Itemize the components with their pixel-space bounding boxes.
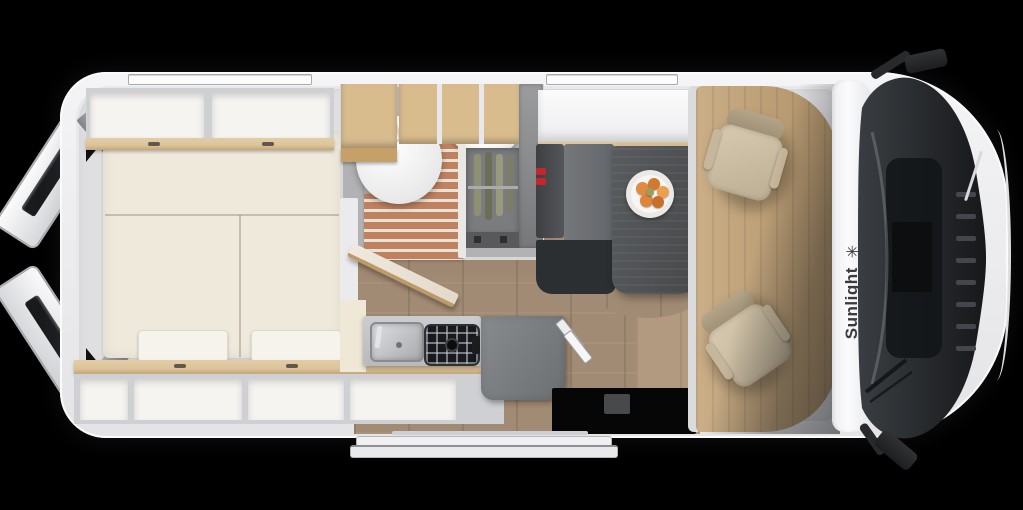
entry-step-lower (350, 445, 618, 458)
roof-window-bedroom (128, 74, 312, 85)
fruit-leaf (646, 188, 654, 196)
overhead-locker-bottom-4 (350, 378, 456, 420)
fruit (652, 196, 664, 208)
hanging-clothes (474, 154, 481, 216)
entry-inner-step (604, 394, 630, 414)
hanging-clothes (507, 156, 513, 212)
kitchen-sink-drain (396, 342, 402, 348)
overhead-locker-top-wood-edge (86, 138, 334, 150)
shelf-divider (479, 84, 484, 144)
seatbelt-buckle (536, 178, 546, 185)
dinette-bench-seat (564, 144, 614, 242)
locker-handle (148, 142, 160, 146)
bed-pillow-left (138, 330, 228, 362)
locker-handle (174, 364, 186, 368)
gas-burner (445, 338, 459, 352)
wardrobe-rail (468, 186, 518, 189)
dinette-overhead-locker (538, 90, 700, 142)
campervan-floorplan-render: Sunlight ✳ (0, 0, 1023, 510)
locker-handle (262, 142, 274, 146)
wardrobe-foot (500, 236, 507, 243)
shower-wardrobe-divider (458, 144, 466, 258)
engine-block (892, 222, 932, 292)
overhead-locker-top-1 (90, 92, 204, 138)
seatbelt-buckle (536, 168, 546, 175)
bumper-contour (982, 130, 1011, 380)
bathroom-overhead-shelf-left (341, 84, 397, 148)
overhead-locker-bottom-3 (248, 378, 344, 420)
bathroom-shelf-tier (341, 148, 397, 162)
dinette-bench-backrest (536, 144, 564, 238)
wardrobe-foot (474, 236, 481, 243)
rear-bed (103, 132, 341, 358)
wing-mirror-top (904, 48, 949, 74)
roof-window-dinette (546, 74, 678, 85)
hanging-clothes (496, 154, 503, 216)
shelf-divider (437, 84, 442, 144)
bed-pillow-right (251, 330, 341, 362)
overhead-locker-bottom-1 (80, 378, 128, 420)
overhead-locker-top-2 (212, 92, 330, 138)
bathroom-overhead-shelf-row (399, 84, 521, 144)
locker-handle (286, 364, 298, 368)
overhead-locker-bottom-2 (134, 378, 242, 420)
bed-seam-horizontal (105, 214, 339, 216)
bed-seam-vertical (239, 215, 241, 357)
entry-sill (392, 431, 588, 435)
hob-control-panel (472, 336, 480, 354)
dinette-bench-base (536, 240, 616, 294)
